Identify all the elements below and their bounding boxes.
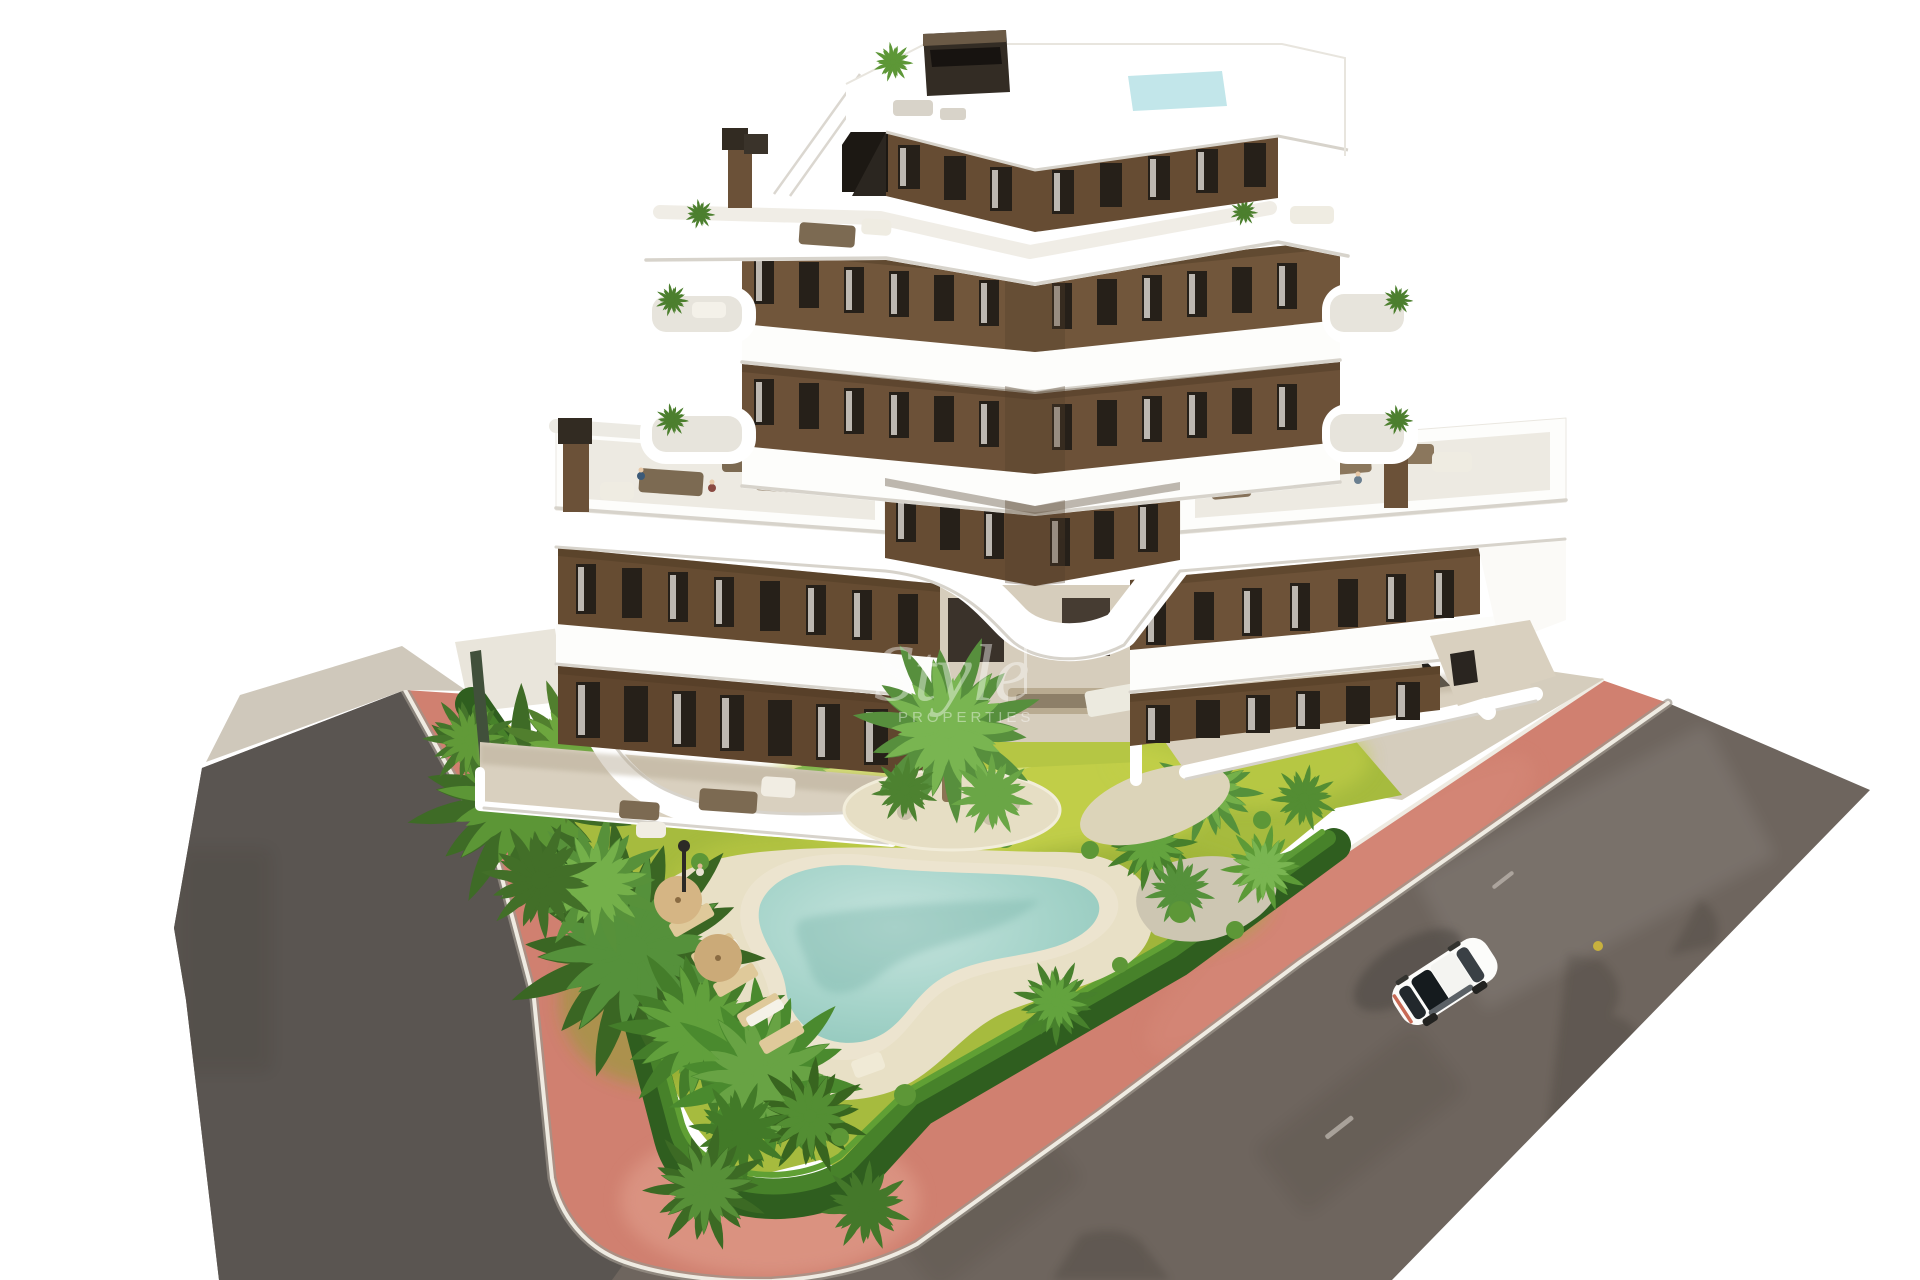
svg-text:Style: Style — [874, 630, 1029, 718]
svg-text:PROPERTIES: PROPERTIES — [898, 709, 1034, 726]
